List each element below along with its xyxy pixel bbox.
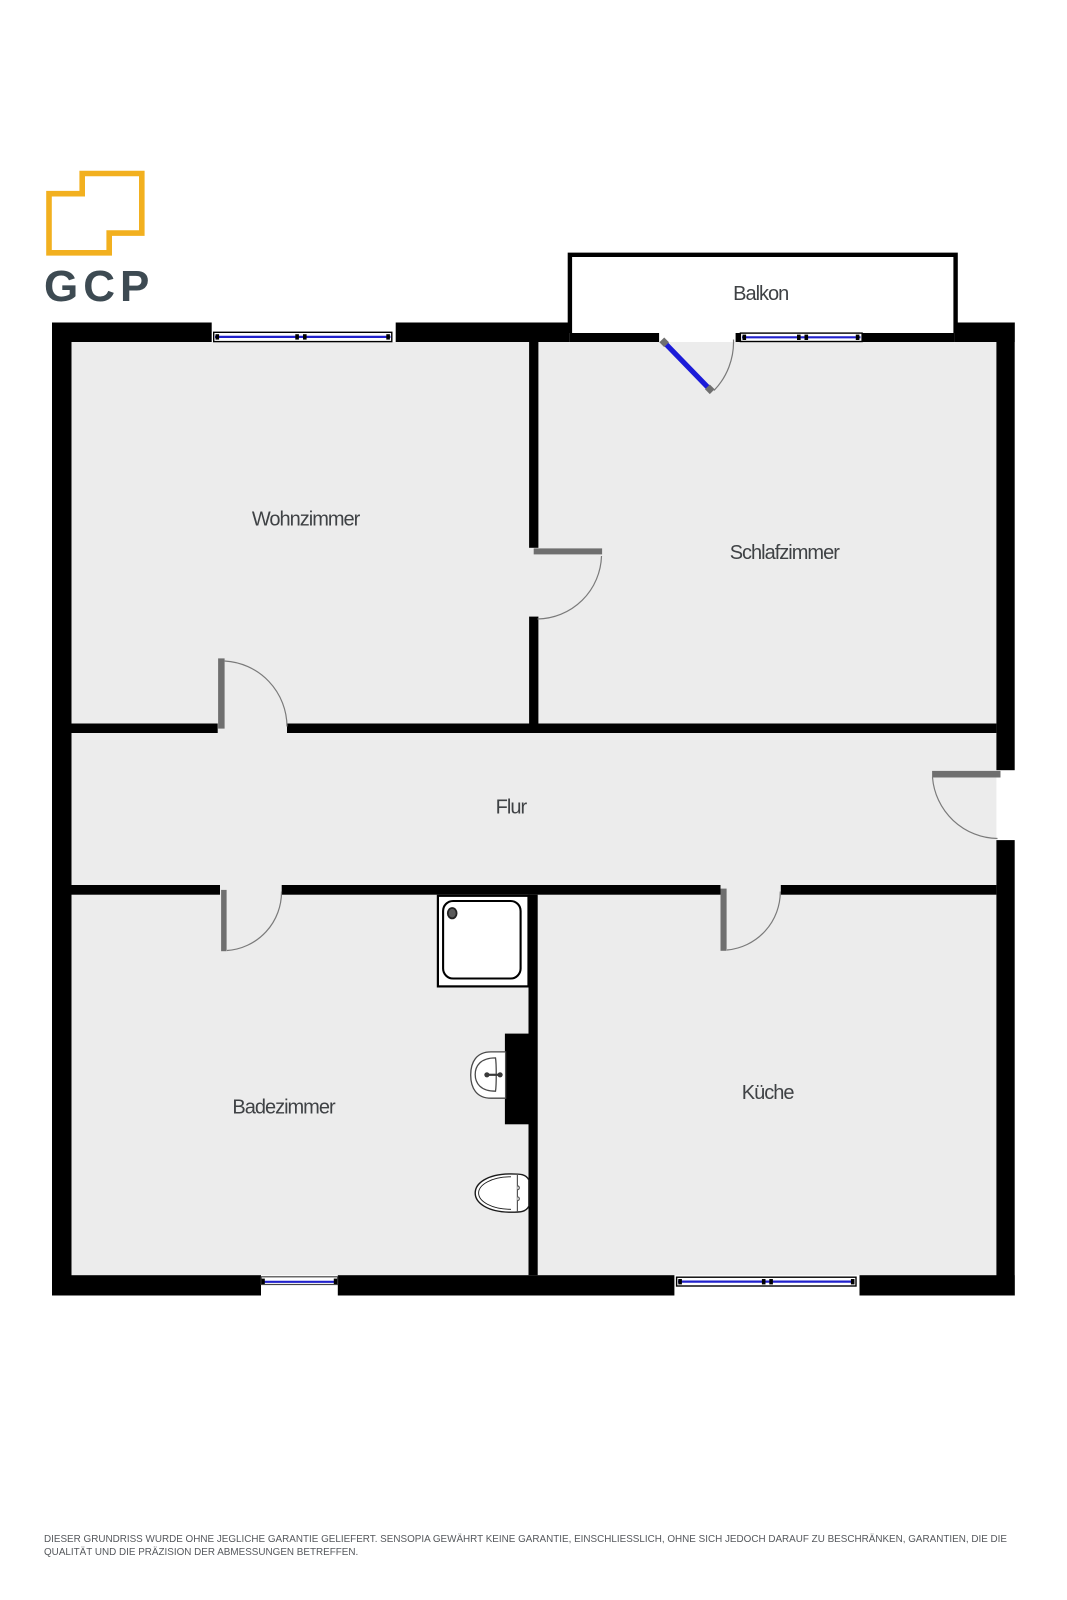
svg-text:Balkon: Balkon (733, 283, 788, 305)
svg-text:Schlafzimmer: Schlafzimmer (730, 542, 840, 564)
svg-text:Küche: Küche (742, 1082, 795, 1104)
svg-text:Flur: Flur (496, 797, 528, 819)
svg-text:Wohnzimmer: Wohnzimmer (252, 509, 361, 531)
svg-text:Badezimmer: Badezimmer (232, 1096, 336, 1118)
